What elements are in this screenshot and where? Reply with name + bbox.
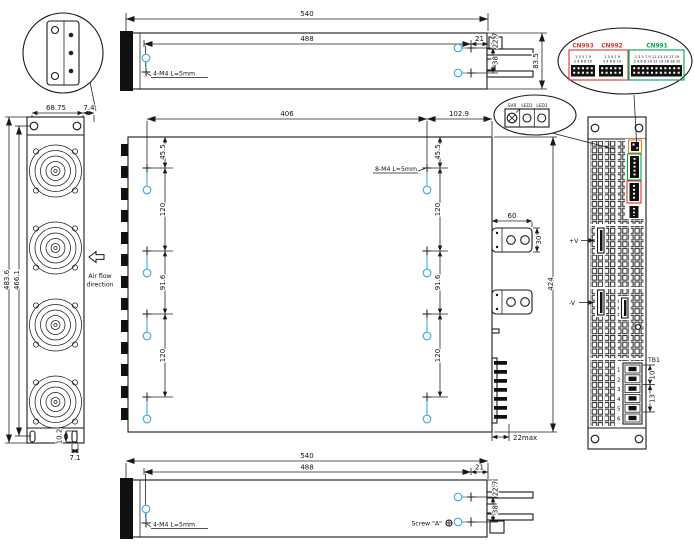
positive-terminal-label: +V (569, 238, 579, 245)
bottom-screw-spec-label: 4-M4 L=5mm (153, 522, 195, 529)
dim-68-75-label: 68.75 (46, 104, 66, 112)
screw-icon (69, 69, 74, 74)
dim-424-label: 424 (547, 277, 555, 291)
tb1-pin-6: 6 (617, 417, 621, 423)
tb1-dim-a-label: 10 (649, 371, 657, 380)
bracket-hole (52, 73, 59, 80)
dim-120-right-label2: 120 (434, 349, 442, 362)
front-view: 68.75 7.4 483.6 466.1 10.2 7.1 Air flow … (3, 104, 114, 462)
screw-a-icon (446, 520, 452, 526)
front-panel-edge (120, 31, 133, 91)
dim-488-label: 488 (300, 464, 313, 472)
cn991-even-pins: 2 4 6 8 10 12 14 16 18 20 (634, 60, 682, 64)
rear-view: 1 2 3 4 5 6 TB1 10 13 +V -V (552, 95, 660, 449)
dim-45-5-left-label: 45.5 (159, 144, 167, 160)
airflow-label-line1: Air flow (88, 273, 111, 280)
screw-callout-circle (423, 186, 431, 194)
tb1-label: TB1 (647, 357, 660, 364)
dim-483-6-label: 483.6 (3, 269, 11, 290)
screw-icon (69, 51, 74, 56)
dim-22-7-label: 22.7 (492, 481, 500, 497)
cn993-label: CN993 (572, 44, 593, 50)
dim-102-9-label: 102.9 (449, 110, 469, 118)
busbar (487, 49, 533, 55)
cn992-label: CN992 (601, 44, 622, 50)
screw-callout-circle (143, 415, 151, 423)
dim-7-1-label: 7.1 (69, 454, 80, 462)
dim-540-label: 540 (300, 10, 313, 18)
negative-terminal-label: -V (569, 300, 576, 307)
busbar-terminal-negative (492, 290, 532, 314)
bracket-detail-view (23, 13, 103, 111)
dim-83-5-label: 83.5 (532, 53, 540, 69)
cn993-connector (571, 65, 595, 77)
screw-callout-circle (454, 69, 462, 77)
dim-466-1-label: 466.1 (13, 270, 21, 290)
dim-22max-label: 22max (513, 434, 537, 442)
screw-callout-circle (423, 332, 431, 340)
dim-30-label: 30 (535, 236, 543, 245)
screw-callout-circle (143, 332, 151, 340)
dim-7-4-label: 7.4 (83, 104, 95, 112)
bottom-view: 540 488 21 22.7 38 4-M4 L=5mm Screw "A" (120, 452, 533, 539)
screw-callout-circle (143, 269, 151, 277)
tb1-dim-b-label: 13 (649, 394, 657, 403)
screw-callout-circle (454, 44, 462, 52)
side-view: 406 102.9 45.5 120 91.6 120 45.5 120 91.… (125, 110, 558, 442)
dim-22-7-label: 22.7 (492, 33, 500, 49)
tb1-pin-5: 5 (617, 407, 621, 413)
dim-120-left-label: 120 (159, 203, 167, 216)
dim-38-label: 38 (492, 505, 500, 514)
screw-callout-circle (423, 415, 431, 423)
tb1-pin-3: 3 (617, 387, 621, 393)
dim-120-left-label2: 120 (159, 349, 167, 362)
airflow-arrow-icon (89, 252, 104, 263)
dim-21-label: 21 (475, 35, 484, 43)
top-screw-spec-label: 4-M4 L=5mm (153, 71, 195, 78)
screw-callout-circle (423, 269, 431, 277)
cn992-connector (599, 65, 623, 77)
cn993-even-pins: 2 4 6 8 10 (574, 60, 593, 64)
side-screw-spec-label: 8-M4 L=5mm (375, 166, 417, 173)
dim-38-label: 38 (492, 56, 500, 65)
psu-dimension-drawing: 540 488 21 22.7 38 83.5 4-M4 L=5mm CN993… (0, 0, 694, 551)
screw-callout-circle (142, 54, 150, 62)
dim-488-label: 488 (300, 35, 313, 43)
cn991-odd-pins: 1 3 5 7 9 11 13 15 17 19 (635, 55, 680, 59)
svr-label: SVR (508, 103, 517, 109)
busbar (487, 71, 533, 77)
screw-icon (636, 325, 641, 330)
dim-540-label: 540 (300, 452, 313, 460)
led1-label: LED1 (536, 103, 547, 109)
led2-label: LED2 (521, 103, 532, 109)
dim-406-label: 406 (280, 110, 294, 118)
screw-a-label: Screw "A" (412, 521, 443, 528)
adjust-detail-view: SVR LED2 LED1 (494, 95, 576, 135)
dim-45-5-right-label: 45.5 (434, 144, 442, 160)
tb1-pin-4: 4 (617, 397, 621, 403)
engineering-drawing-page: 540 488 21 22.7 38 83.5 4-M4 L=5mm CN993… (0, 0, 694, 551)
screw-callout-circle (143, 186, 151, 194)
screw-callout-circle (454, 493, 462, 501)
screw-callout-circle (142, 505, 150, 513)
cn993-odd-pins: 1 3 5 7 9 (575, 55, 592, 59)
cn992-even-pins: 2 4 6 8 10 (603, 60, 622, 64)
busbar-terminal-positive (492, 228, 532, 252)
dim-120-right-label: 120 (434, 203, 442, 216)
cn991-label: CN991 (646, 44, 667, 50)
screw-callout-circle (454, 518, 462, 526)
front-panel-edge (120, 478, 133, 539)
top-view: 540 488 21 22.7 38 83.5 4-M4 L=5mm (120, 10, 547, 91)
tb1-pin-2: 2 (617, 377, 621, 383)
screw-icon (69, 33, 74, 38)
dim-60-label: 60 (508, 212, 517, 220)
dim-21-label: 21 (475, 464, 484, 472)
dim-10-2-label: 10.2 (56, 429, 64, 445)
dim-91-6-left-label: 91.6 (159, 274, 167, 290)
tb1-pin-1: 1 (617, 368, 621, 374)
cn992-odd-pins: 1 3 5 7 9 (604, 55, 621, 59)
airflow-label-line2: direction (86, 282, 113, 289)
busbar-bracket (490, 521, 504, 533)
connector-detail-view: CN993 CN992 CN991 1 3 5 7 9 2 4 6 8 10 1… (558, 28, 692, 94)
dim-91-6-right-label: 91.6 (434, 274, 442, 290)
bracket-hole (52, 27, 59, 34)
cn991-connector (631, 65, 682, 77)
